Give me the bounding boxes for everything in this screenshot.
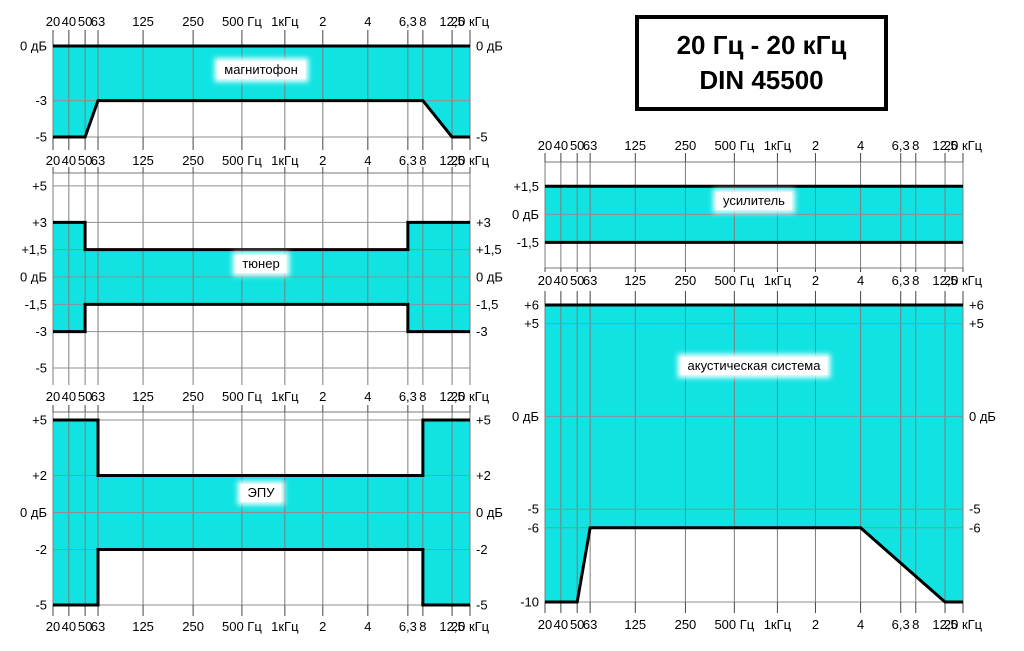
x-tick-label: 125: [624, 273, 646, 288]
x-tick-label: 500 Гц: [714, 138, 754, 153]
x-tick-label: 4: [857, 273, 864, 288]
x-tick-label: 500 Гц: [714, 617, 754, 632]
x-tick-label: 2: [319, 153, 326, 168]
y-axis-label-left: -5: [35, 361, 47, 376]
y-axis-label-right: -3: [476, 324, 488, 339]
y-axis-label-left: -6: [527, 520, 539, 535]
x-tick-label: 40: [62, 153, 76, 168]
y-axis-label-right: +6: [969, 298, 984, 313]
y-axis-label-left: 0 дБ: [20, 269, 47, 284]
y-axis-label-left: +1,5: [513, 179, 539, 194]
x-tick-label: 4: [857, 617, 864, 632]
x-tick-label: 20: [538, 138, 552, 153]
x-tick-label: 1кГц: [271, 14, 299, 29]
x-tick-label: 40: [62, 389, 76, 404]
x-tick-label: 125: [624, 617, 646, 632]
x-tick-label: 125: [132, 14, 154, 29]
x-axis-label-row: 20405063125250500 Гц1кГц246,3812,520 кГц: [538, 138, 983, 153]
lower-limit-line: [53, 304, 470, 331]
x-tick-label: 20 кГц: [944, 617, 983, 632]
x-tick-label: 8: [419, 619, 426, 634]
y-axis-label-left: -5: [35, 598, 47, 613]
x-axis-label-row: 20405063125250500 Гц1кГц246,3812,520 кГц: [46, 153, 490, 168]
x-tick-label: 20: [46, 14, 60, 29]
y-axis-label-left: +5: [524, 316, 539, 331]
x-tick-label: 40: [554, 273, 568, 288]
x-tick-label: 20 кГц: [944, 273, 983, 288]
x-tick-label: 8: [912, 138, 919, 153]
y-axis-label-left: -3: [35, 93, 47, 108]
y-axis-label-left: -5: [527, 502, 539, 517]
x-tick-label: 1кГц: [764, 617, 792, 632]
y-axis-label-right: 0 дБ: [476, 39, 503, 54]
y-axis-label-left: -10: [520, 595, 539, 610]
x-tick-label: 63: [583, 273, 597, 288]
y-axis-label-right: -6: [969, 520, 981, 535]
x-tick-label: 6,3: [892, 617, 910, 632]
x-tick-label: 63: [583, 617, 597, 632]
x-axis-label-row: 20405063125250500 Гц1кГц246,3812,520 кГц: [46, 14, 490, 29]
x-tick-label: 500 Гц: [222, 389, 262, 404]
x-tick-label: 125: [132, 619, 154, 634]
y-axis-label-left: -3: [35, 324, 47, 339]
x-tick-label: 20 кГц: [451, 389, 490, 404]
x-tick-label: 125: [132, 389, 154, 404]
x-tick-label: 6,3: [892, 273, 910, 288]
x-tick-label: 1кГц: [271, 389, 299, 404]
y-axis-label-right: +5: [476, 412, 491, 427]
x-tick-label: 20: [538, 617, 552, 632]
x-tick-label: 6,3: [399, 389, 417, 404]
y-axis-label-right: +1,5: [476, 242, 502, 257]
x-tick-label: 20: [46, 619, 60, 634]
x-tick-label: 4: [364, 153, 371, 168]
y-axis-label-left: +5: [32, 412, 47, 427]
x-axis-label-row: 20405063125250500 Гц1кГц246,3812,520 кГц: [46, 389, 490, 404]
x-tick-label: 1кГц: [271, 153, 299, 168]
y-axis-label-right: -2: [476, 542, 488, 557]
chart-tuner: +5+3+1,50 дБ-1,5-3-5+3+1,50 дБ-1,5-3: [20, 167, 503, 385]
x-tick-label: 8: [419, 153, 426, 168]
chart-label-akustika: акустическая система: [681, 357, 828, 375]
x-tick-label: 2: [319, 14, 326, 29]
y-axis-label-left: 0 дБ: [512, 409, 539, 424]
x-tick-label: 1кГц: [764, 138, 792, 153]
x-tick-label: 2: [812, 273, 819, 288]
x-tick-label: 500 Гц: [222, 153, 262, 168]
y-axis-label-right: -1,5: [476, 297, 498, 312]
y-axis-label-left: +5: [32, 178, 47, 193]
y-axis-label-right: 0 дБ: [476, 269, 503, 284]
x-axis-label-row: 20405063125250500 Гц1кГц246,3812,520 кГц: [46, 619, 490, 634]
din45500-tolerance-figure: 0 дБ-3-50 дБ-5+5+3+1,50 дБ-1,5-3-5+3+1,5…: [0, 0, 1024, 651]
y-axis-label-left: -1,5: [517, 235, 539, 250]
chart-label-magnitofon: магнитофон: [217, 61, 305, 79]
y-axis-label-right: -5: [476, 130, 488, 145]
x-tick-label: 125: [624, 138, 646, 153]
x-tick-label: 63: [91, 14, 105, 29]
x-tick-label: 63: [91, 153, 105, 168]
x-tick-label: 20 кГц: [451, 14, 490, 29]
x-axis-label-row: 20405063125250500 Гц1кГц246,3812,520 кГц: [538, 273, 983, 288]
x-tick-label: 250: [182, 153, 204, 168]
x-axis-label-row: 20405063125250500 Гц1кГц246,3812,520 кГц: [538, 617, 983, 632]
y-axis-label-right: +3: [476, 215, 491, 230]
x-tick-label: 40: [554, 617, 568, 632]
chart-usilitel: +1,50 дБ-1,5: [512, 153, 963, 272]
x-tick-label: 63: [91, 619, 105, 634]
x-tick-label: 2: [319, 389, 326, 404]
y-axis-label-left: 0 дБ: [20, 505, 47, 520]
x-tick-label: 6,3: [399, 619, 417, 634]
x-tick-label: 250: [675, 617, 697, 632]
y-axis-label-right: +2: [476, 468, 491, 483]
x-tick-label: 500 Гц: [222, 14, 262, 29]
x-tick-label: 63: [583, 138, 597, 153]
x-tick-label: 8: [912, 617, 919, 632]
y-axis-label-left: 0 дБ: [20, 39, 47, 54]
y-axis-label-right: +5: [969, 316, 984, 331]
x-tick-label: 20: [46, 389, 60, 404]
x-tick-label: 6,3: [399, 153, 417, 168]
x-tick-label: 250: [675, 273, 697, 288]
x-tick-label: 1кГц: [764, 273, 792, 288]
x-tick-label: 250: [182, 619, 204, 634]
x-tick-label: 2: [812, 138, 819, 153]
x-tick-label: 2: [319, 619, 326, 634]
x-tick-label: 4: [364, 14, 371, 29]
y-axis-label-left: -1,5: [25, 297, 47, 312]
x-tick-label: 40: [62, 619, 76, 634]
x-tick-label: 63: [91, 389, 105, 404]
x-tick-label: 2: [812, 617, 819, 632]
y-axis-label-left: +3: [32, 215, 47, 230]
y-axis-label-right: 0 дБ: [969, 409, 996, 424]
x-tick-label: 40: [554, 138, 568, 153]
x-tick-label: 20: [538, 273, 552, 288]
x-tick-label: 4: [857, 138, 864, 153]
title-box: 20 Гц - 20 кГц DIN 45500: [635, 15, 888, 111]
x-tick-label: 20 кГц: [451, 153, 490, 168]
x-tick-label: 20 кГц: [451, 619, 490, 634]
y-axis-label-left: 0 дБ: [512, 207, 539, 222]
y-axis-label-left: +1,5: [21, 242, 47, 257]
y-axis-label-left: -2: [35, 542, 47, 557]
chart-epu: +5+20 дБ-2-5+5+20 дБ-2-5: [20, 405, 503, 616]
chart-magnitofon: 0 дБ-3-50 дБ-5: [20, 30, 503, 150]
chart-label-usilitel: усилитель: [716, 192, 792, 210]
x-tick-label: 20 кГц: [944, 138, 983, 153]
x-tick-label: 4: [364, 619, 371, 634]
title-standard-name: DIN 45500: [699, 63, 823, 98]
y-axis-label-right: -5: [969, 502, 981, 517]
y-axis-label-left: +2: [32, 468, 47, 483]
x-tick-label: 8: [419, 389, 426, 404]
y-axis-label-left: -5: [35, 130, 47, 145]
x-tick-label: 1кГц: [271, 619, 299, 634]
y-axis-label-right: 0 дБ: [476, 505, 503, 520]
x-tick-label: 250: [182, 389, 204, 404]
y-axis-label-left: +6: [524, 298, 539, 313]
upper-limit-line: [53, 222, 470, 249]
x-tick-label: 20: [46, 153, 60, 168]
x-tick-label: 250: [675, 138, 697, 153]
y-axis-label-right: -5: [476, 598, 488, 613]
x-tick-label: 500 Гц: [222, 619, 262, 634]
chart-label-epu: ЭПУ: [241, 484, 282, 502]
x-tick-label: 6,3: [399, 14, 417, 29]
chart-label-tuner: тюнер: [235, 255, 286, 273]
x-tick-label: 250: [182, 14, 204, 29]
x-tick-label: 8: [912, 273, 919, 288]
x-tick-label: 40: [62, 14, 76, 29]
title-frequency-range: 20 Гц - 20 кГц: [677, 28, 847, 63]
x-tick-label: 8: [419, 14, 426, 29]
x-tick-label: 500 Гц: [714, 273, 754, 288]
chart-akustika: +6+50 дБ-5-6-10+6+50 дБ-5-6: [512, 291, 996, 613]
x-tick-label: 4: [364, 389, 371, 404]
x-tick-label: 125: [132, 153, 154, 168]
x-tick-label: 6,3: [892, 138, 910, 153]
